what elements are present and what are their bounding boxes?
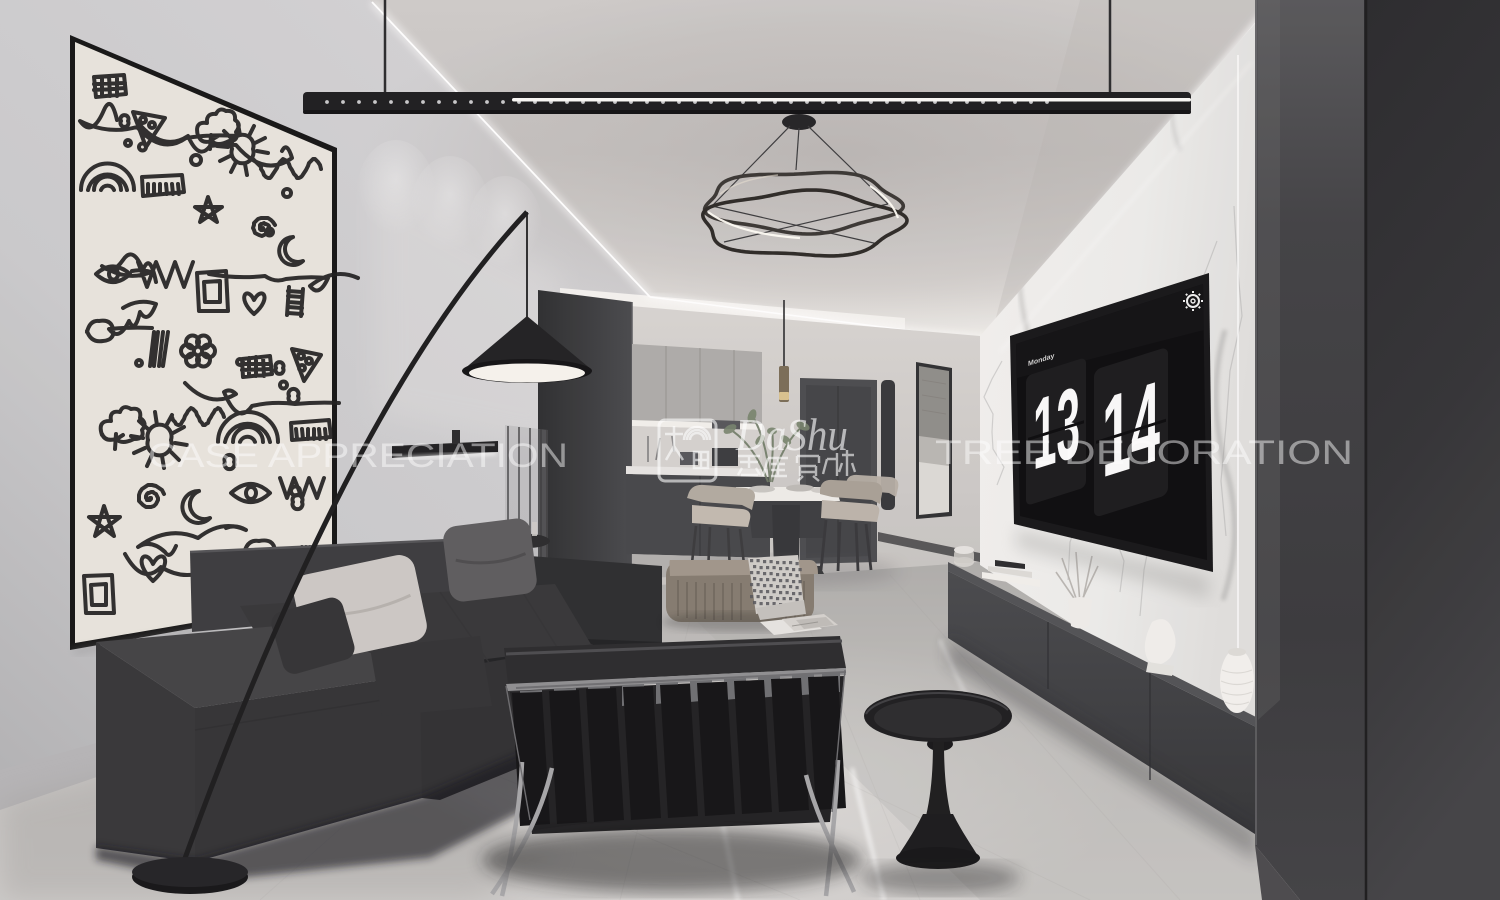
svg-text:DaShu: DaShu	[735, 409, 848, 460]
svg-text:TREE DECORATION: TREE DECORATION	[935, 434, 1353, 472]
svg-text:CASE APPRECIATION: CASE APPRECIATION	[148, 437, 568, 475]
